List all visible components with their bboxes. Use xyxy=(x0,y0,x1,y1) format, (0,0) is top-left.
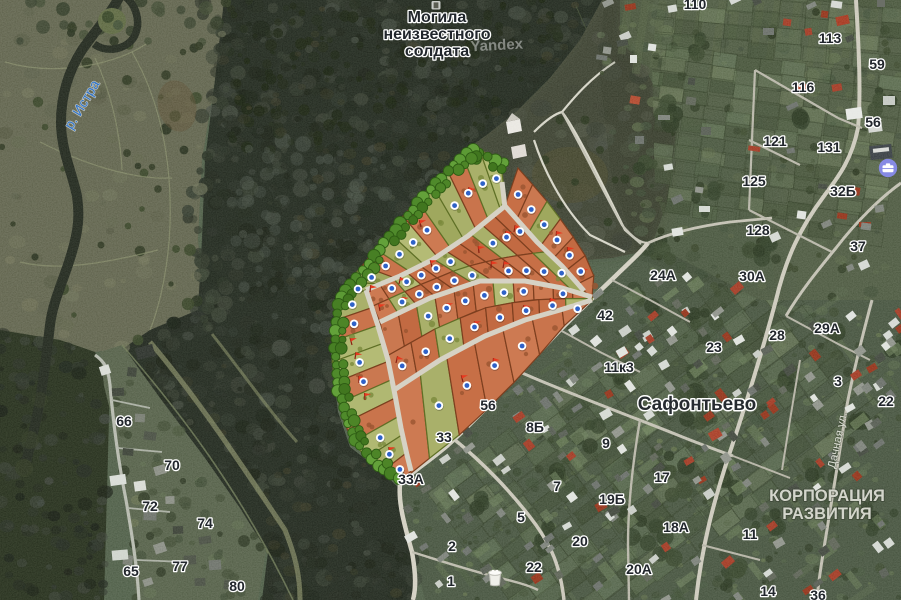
svg-text:19Б: 19Б xyxy=(599,491,625,507)
svg-text:70: 70 xyxy=(164,457,180,473)
svg-text:29А: 29А xyxy=(814,320,840,336)
svg-text:9: 9 xyxy=(602,435,610,451)
svg-text:1: 1 xyxy=(447,573,455,589)
svg-text:20: 20 xyxy=(572,533,588,549)
svg-text:110: 110 xyxy=(684,0,707,12)
svg-text:22: 22 xyxy=(878,393,894,409)
svg-text:72: 72 xyxy=(142,498,158,514)
svg-text:66: 66 xyxy=(116,413,132,429)
svg-text:65: 65 xyxy=(123,563,139,579)
svg-text:33: 33 xyxy=(436,429,452,445)
svg-text:128: 128 xyxy=(746,222,770,238)
svg-text:59: 59 xyxy=(869,56,885,72)
svg-text:32Б: 32Б xyxy=(830,183,856,199)
svg-text:37: 37 xyxy=(850,238,866,254)
svg-text:56: 56 xyxy=(480,397,496,413)
svg-text:131: 131 xyxy=(817,139,841,155)
svg-text:РАЗВИТИЯ: РАЗВИТИЯ xyxy=(782,505,871,523)
svg-text:77: 77 xyxy=(172,558,188,574)
svg-text:74: 74 xyxy=(197,515,213,531)
svg-text:2: 2 xyxy=(448,538,456,554)
svg-text:17: 17 xyxy=(654,469,670,485)
svg-text:Yandex: Yandex xyxy=(470,36,524,56)
svg-text:8Б: 8Б xyxy=(526,419,544,435)
svg-text:18А: 18А xyxy=(663,519,689,535)
svg-text:7: 7 xyxy=(553,478,561,494)
svg-text:11к3: 11к3 xyxy=(604,359,634,375)
svg-text:36: 36 xyxy=(810,587,826,600)
svg-text:3: 3 xyxy=(834,373,842,389)
svg-text:14: 14 xyxy=(760,583,776,599)
svg-text:42: 42 xyxy=(597,307,613,323)
svg-text:Могила: Могила xyxy=(408,9,467,26)
svg-text:Сафонтьево: Сафонтьево xyxy=(638,394,757,415)
svg-text:121: 121 xyxy=(763,133,787,149)
svg-text:23: 23 xyxy=(706,339,722,355)
svg-text:5: 5 xyxy=(517,509,525,525)
svg-text:125: 125 xyxy=(742,173,766,189)
svg-text:24А: 24А xyxy=(650,267,676,283)
svg-text:113: 113 xyxy=(819,30,842,46)
svg-text:33А: 33А xyxy=(398,471,424,487)
svg-text:116: 116 xyxy=(792,79,815,95)
svg-text:20А: 20А xyxy=(626,561,652,577)
svg-text:30А: 30А xyxy=(739,268,765,284)
svg-text:22: 22 xyxy=(526,559,542,575)
svg-text:56: 56 xyxy=(865,114,881,130)
svg-text:солдата: солдата xyxy=(405,43,469,60)
svg-text:11: 11 xyxy=(743,526,758,542)
svg-text:28: 28 xyxy=(769,327,785,343)
svg-text:КОРПОРАЦИЯ: КОРПОРАЦИЯ xyxy=(769,487,885,505)
svg-text:80: 80 xyxy=(229,578,245,594)
